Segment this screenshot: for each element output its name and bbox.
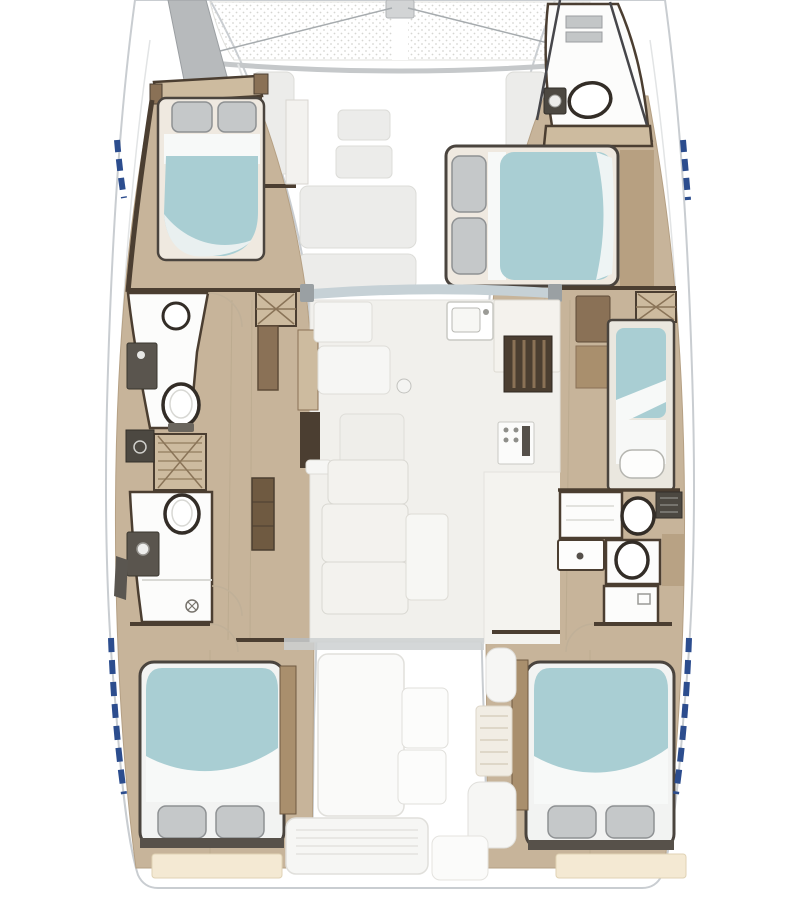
bed-footboard <box>140 838 284 848</box>
wall-cap <box>254 74 268 94</box>
settee-cushion <box>322 562 408 614</box>
hull-cabinet <box>576 346 610 388</box>
settee-cushion <box>328 460 408 504</box>
mattress <box>500 152 612 280</box>
foredeck-hatch <box>336 146 392 178</box>
coffee-table <box>406 514 448 600</box>
faucet-icon <box>137 351 145 359</box>
stove-knob <box>514 438 519 443</box>
wood-floor-strip <box>662 534 684 586</box>
mattress <box>534 668 668 776</box>
faucet-icon <box>577 553 584 560</box>
port-transom-step <box>152 854 282 878</box>
pillow-icon <box>216 806 264 838</box>
cabin-forward-wall <box>544 126 652 146</box>
mattress <box>146 668 278 772</box>
pillow-icon <box>218 102 256 132</box>
pillow-icon <box>548 806 596 838</box>
vanity-counter <box>127 343 157 389</box>
seat-block <box>314 302 372 342</box>
bed-footboard <box>528 840 674 850</box>
port-hull-window-dark <box>114 556 128 600</box>
cockpit-seat <box>486 648 516 702</box>
catamaran-floor-plan <box>0 0 800 900</box>
toilet-tank <box>168 423 194 432</box>
seat-block <box>340 414 404 466</box>
starboard-passage-floor <box>482 468 560 644</box>
wood-side-strip <box>280 666 296 814</box>
seat-block <box>318 346 390 394</box>
pillow-icon <box>452 156 486 212</box>
salon-entry-shelf <box>298 330 318 410</box>
settee-cushion <box>322 504 408 562</box>
toilet-icon <box>616 542 648 578</box>
starboard-single-berth <box>608 320 674 490</box>
shower-room <box>604 586 658 624</box>
double-berth <box>158 98 264 260</box>
pillow-icon <box>158 806 206 838</box>
faucet-icon <box>483 309 489 315</box>
windshield <box>312 289 550 294</box>
foredeck-locker <box>300 186 416 248</box>
sink-icon <box>137 543 149 555</box>
pillow-icon <box>172 102 212 132</box>
pillow-icon <box>606 806 654 838</box>
hull-cabinet <box>252 478 274 550</box>
stern-pad <box>432 836 488 880</box>
foredeck-hatch <box>338 110 390 140</box>
wood-floor-strip <box>620 150 654 286</box>
cockpit-settee <box>318 654 404 816</box>
cockpit-table <box>398 750 446 804</box>
stove-knob <box>504 438 509 443</box>
washer-cabinet <box>126 430 154 462</box>
windshield-end <box>300 284 314 302</box>
stove-knob <box>504 428 509 433</box>
sink-basin <box>452 308 480 332</box>
shelf <box>566 32 602 42</box>
toilet-icon <box>622 498 654 534</box>
shower-room <box>560 492 622 538</box>
cockpit-table <box>402 688 448 748</box>
hull-cabinet <box>576 296 610 342</box>
mast-post <box>397 379 411 393</box>
pillow-icon <box>620 450 664 478</box>
windshield-end <box>548 284 562 302</box>
shelf <box>566 16 602 28</box>
double-berth <box>446 146 618 286</box>
stove-side <box>522 426 530 456</box>
cockpit-divider <box>284 638 484 650</box>
floor-plan-canvas <box>0 0 800 900</box>
sink-icon <box>549 95 561 107</box>
pillow-icon <box>452 218 486 274</box>
foredeck-locker <box>298 254 416 290</box>
sink-icon <box>163 303 189 329</box>
stove-knob <box>514 428 519 433</box>
bedside-shelf <box>286 100 308 184</box>
starboard-transom-step <box>556 854 686 878</box>
wardrobe <box>258 326 278 390</box>
cockpit-bench <box>286 818 428 874</box>
